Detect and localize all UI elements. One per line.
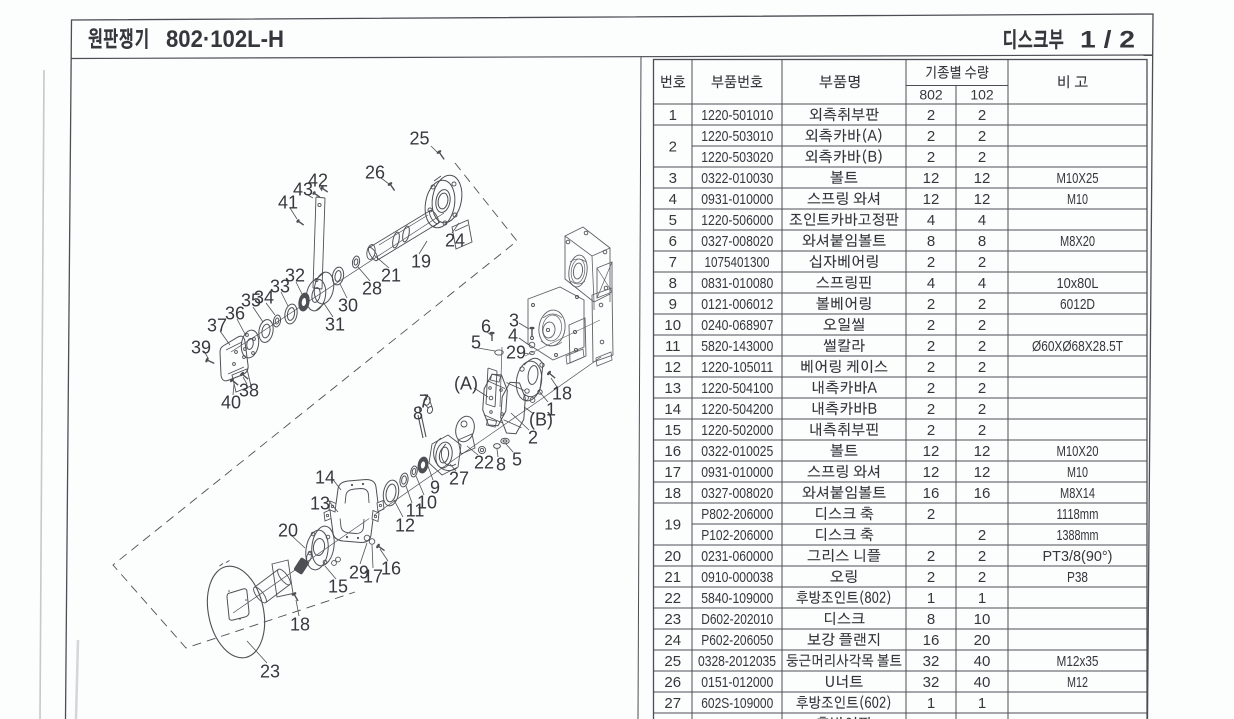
svg-text:2: 2	[978, 254, 986, 271]
svg-text:12: 12	[974, 464, 991, 481]
svg-text:(A): (A)	[454, 374, 478, 394]
svg-text:11: 11	[665, 338, 681, 355]
svg-text:2: 2	[978, 380, 986, 397]
svg-text:5: 5	[669, 212, 677, 229]
svg-text:18: 18	[290, 615, 310, 635]
svg-text:13: 13	[664, 380, 681, 397]
svg-text:41: 41	[278, 193, 298, 213]
svg-text:23: 23	[260, 662, 280, 682]
svg-text:6012D: 6012D	[1060, 296, 1095, 313]
svg-text:2: 2	[927, 317, 935, 334]
svg-text:4: 4	[927, 212, 935, 229]
svg-text:2: 2	[978, 107, 986, 124]
svg-text:10: 10	[974, 611, 991, 628]
svg-text:32: 32	[923, 674, 940, 691]
svg-text:8: 8	[927, 611, 935, 628]
svg-text:M12x35: M12x35	[1057, 653, 1099, 670]
svg-text:2: 2	[978, 128, 986, 145]
svg-text:1: 1	[978, 590, 986, 607]
svg-text:6: 6	[669, 233, 677, 250]
svg-text:P102-206000: P102-206000	[701, 527, 773, 544]
svg-text:26: 26	[664, 674, 681, 691]
svg-text:0322-010025: 0322-010025	[701, 443, 773, 460]
svg-text:21: 21	[664, 569, 681, 586]
svg-text:1075401300: 1075401300	[705, 254, 770, 271]
svg-text:3: 3	[669, 170, 677, 187]
svg-text:5: 5	[512, 450, 522, 470]
svg-text:2: 2	[978, 548, 986, 565]
svg-text:1 / 2: 1 / 2	[1080, 27, 1135, 54]
svg-text:17: 17	[664, 464, 681, 481]
svg-text:12: 12	[974, 191, 991, 208]
svg-text:7: 7	[669, 254, 677, 271]
svg-text:2: 2	[927, 338, 935, 355]
svg-text:102: 102	[970, 87, 994, 103]
svg-text:2: 2	[927, 548, 935, 565]
svg-text:2: 2	[669, 138, 677, 155]
svg-text:0327-008020: 0327-008020	[701, 485, 773, 502]
svg-text:(B): (B)	[529, 410, 553, 430]
svg-text:16: 16	[923, 632, 940, 649]
svg-text:19: 19	[664, 516, 681, 533]
svg-text:40: 40	[221, 393, 241, 413]
svg-text:5820-143000: 5820-143000	[701, 338, 773, 355]
svg-text:19: 19	[411, 252, 431, 272]
svg-text:37: 37	[207, 316, 227, 336]
svg-text:16: 16	[974, 485, 991, 502]
svg-text:8: 8	[978, 233, 986, 250]
svg-text:1: 1	[669, 107, 677, 124]
svg-text:1220-503020: 1220-503020	[701, 149, 773, 166]
svg-text:40: 40	[974, 653, 991, 670]
svg-text:10x80L: 10x80L	[1057, 275, 1099, 292]
svg-text:0327-008020: 0327-008020	[701, 233, 773, 250]
svg-text:2: 2	[978, 527, 986, 544]
svg-text:P38: P38	[1067, 569, 1088, 586]
svg-text:30: 30	[338, 296, 358, 316]
svg-text:0931-010000: 0931-010000	[701, 464, 773, 481]
svg-text:1: 1	[978, 695, 986, 712]
svg-text:2: 2	[927, 296, 935, 313]
svg-text:1388mm: 1388mm	[1057, 527, 1099, 544]
svg-text:0151-012000: 0151-012000	[701, 674, 773, 691]
svg-text:1220-503010: 1220-503010	[701, 128, 773, 145]
svg-text:M8X14: M8X14	[1060, 485, 1095, 502]
svg-text:22: 22	[474, 453, 494, 473]
svg-text:2: 2	[927, 380, 935, 397]
svg-text:0910-000038: 0910-000038	[701, 569, 773, 586]
svg-text:20: 20	[974, 632, 991, 649]
svg-text:26: 26	[365, 163, 385, 183]
svg-text:Ø60XØ68X28.5T: Ø60XØ68X28.5T	[1032, 338, 1123, 355]
svg-text:2: 2	[978, 338, 986, 355]
svg-text:16: 16	[381, 559, 401, 579]
svg-text:14: 14	[664, 401, 681, 418]
svg-text:2: 2	[528, 428, 538, 448]
svg-text:2: 2	[927, 422, 935, 439]
svg-text:8: 8	[669, 275, 677, 292]
svg-text:0831-010080: 0831-010080	[701, 275, 773, 292]
svg-text:27: 27	[449, 469, 469, 489]
svg-text:12: 12	[974, 443, 991, 460]
svg-text:6: 6	[481, 317, 491, 337]
svg-text:20: 20	[664, 548, 681, 565]
svg-text:22: 22	[664, 590, 681, 607]
svg-text:1: 1	[927, 590, 935, 607]
svg-text:802·102L-H: 802·102L-H	[166, 26, 284, 53]
svg-text:25: 25	[409, 129, 429, 149]
svg-text:2: 2	[978, 149, 986, 166]
svg-text:1220-502000: 1220-502000	[701, 422, 773, 439]
svg-text:16: 16	[923, 485, 940, 502]
svg-text:12: 12	[923, 191, 940, 208]
svg-text:P602-206050: P602-206050	[701, 632, 773, 649]
svg-text:29: 29	[506, 343, 526, 363]
svg-text:0322-010030: 0322-010030	[701, 170, 773, 187]
svg-text:12: 12	[974, 170, 991, 187]
svg-text:M12: M12	[1067, 674, 1088, 691]
svg-text:31: 31	[325, 315, 345, 335]
svg-text:602S-109000: 602S-109000	[701, 695, 773, 712]
svg-text:2: 2	[927, 254, 935, 271]
svg-text:P802-206000: P802-206000	[701, 506, 773, 523]
svg-text:1118mm: 1118mm	[1057, 506, 1099, 523]
svg-text:15: 15	[664, 422, 681, 439]
svg-text:M10X20: M10X20	[1057, 443, 1099, 460]
svg-text:2: 2	[978, 359, 986, 376]
svg-text:2: 2	[978, 317, 986, 334]
svg-text:0231-060000: 0231-060000	[701, 548, 773, 565]
svg-text:0931-010000: 0931-010000	[701, 191, 773, 208]
svg-text:5840-109000: 5840-109000	[701, 590, 773, 607]
svg-text:4: 4	[978, 212, 986, 229]
svg-text:12: 12	[395, 516, 415, 536]
svg-text:24: 24	[664, 632, 681, 649]
svg-text:2: 2	[927, 107, 935, 124]
svg-text:18: 18	[664, 485, 681, 502]
svg-text:8: 8	[496, 455, 506, 475]
svg-text:M10X25: M10X25	[1057, 170, 1099, 187]
svg-text:13: 13	[310, 494, 330, 514]
svg-text:802: 802	[919, 87, 943, 103]
svg-text:9: 9	[669, 296, 677, 313]
svg-text:24: 24	[445, 231, 465, 251]
svg-text:12: 12	[923, 443, 940, 460]
svg-text:2: 2	[927, 506, 935, 523]
svg-text:8: 8	[413, 404, 423, 424]
svg-text:2: 2	[978, 422, 986, 439]
svg-text:32: 32	[923, 653, 940, 670]
svg-text:0328-2012035: 0328-2012035	[698, 653, 776, 670]
svg-text:2: 2	[978, 569, 986, 586]
svg-text:2: 2	[927, 401, 935, 418]
svg-text:2: 2	[927, 359, 935, 376]
svg-text:1220-504100: 1220-504100	[701, 380, 773, 397]
svg-text:2: 2	[927, 149, 935, 166]
svg-text:M8X20: M8X20	[1060, 233, 1095, 250]
svg-text:16: 16	[664, 443, 681, 460]
svg-text:2: 2	[978, 401, 986, 418]
svg-text:40: 40	[974, 674, 991, 691]
svg-text:M10: M10	[1067, 191, 1088, 208]
svg-text:2: 2	[927, 569, 935, 586]
svg-text:M10: M10	[1067, 464, 1088, 481]
svg-text:20: 20	[278, 521, 298, 541]
svg-text:D602-202010: D602-202010	[701, 611, 773, 628]
svg-text:15: 15	[328, 577, 348, 597]
svg-text:14: 14	[315, 468, 335, 488]
svg-text:25: 25	[664, 653, 681, 670]
svg-text:0240-068907: 0240-068907	[701, 317, 773, 334]
svg-text:2: 2	[978, 296, 986, 313]
svg-text:PT3/8(90°): PT3/8(90°)	[1043, 548, 1113, 565]
svg-text:1: 1	[927, 695, 935, 712]
svg-text:1220-105011: 1220-105011	[701, 359, 773, 376]
svg-text:4: 4	[669, 191, 677, 208]
svg-text:38: 38	[239, 381, 259, 401]
svg-text:1220-504200: 1220-504200	[701, 401, 773, 418]
svg-text:8: 8	[927, 233, 935, 250]
svg-text:27: 27	[664, 695, 681, 712]
svg-text:4: 4	[978, 275, 986, 292]
svg-text:36: 36	[225, 304, 245, 324]
svg-text:5: 5	[471, 333, 481, 353]
svg-text:12: 12	[923, 464, 940, 481]
svg-text:12: 12	[923, 170, 940, 187]
svg-text:39: 39	[191, 338, 211, 358]
svg-text:21: 21	[381, 266, 401, 286]
svg-text:1220-501010: 1220-501010	[701, 107, 773, 124]
svg-text:10: 10	[664, 317, 681, 334]
svg-text:4: 4	[927, 275, 935, 292]
svg-text:23: 23	[664, 611, 681, 628]
svg-text:2: 2	[927, 128, 935, 145]
svg-text:12: 12	[664, 359, 681, 376]
svg-text:1220-506000: 1220-506000	[701, 212, 773, 229]
svg-text:28: 28	[362, 279, 382, 299]
svg-text:0121-006012: 0121-006012	[701, 296, 773, 313]
